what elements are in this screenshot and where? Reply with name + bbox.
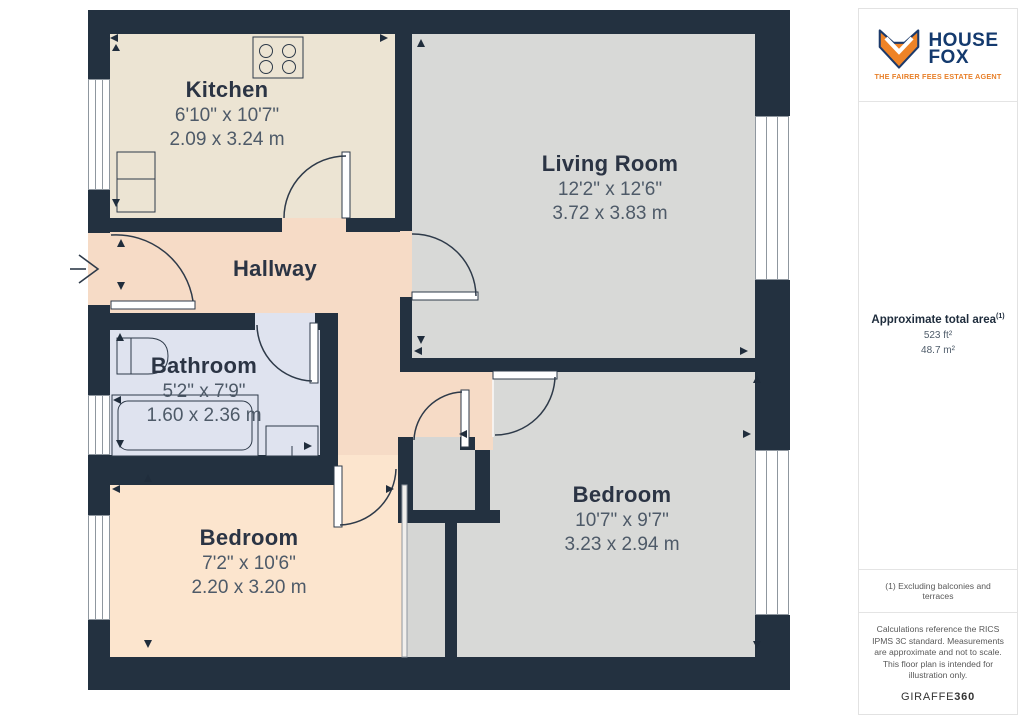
room-name: Kitchen — [169, 76, 284, 104]
room-name: Hallway — [233, 255, 317, 283]
floorplan-page: Kitchen 6'10" x 10'7" 2.09 x 3.24 m Livi… — [0, 0, 1020, 721]
wall — [88, 305, 110, 395]
disclaimer-text: Calculations reference the RICS IPMS 3C … — [871, 624, 1005, 682]
bedroom-left-door-opening — [338, 455, 398, 485]
wall — [88, 34, 110, 79]
window — [88, 395, 110, 455]
bedroom-left-label: Bedroom 7'2" x 10'6" 2.20 x 3.20 m — [191, 524, 306, 600]
window — [755, 116, 789, 280]
wall — [395, 10, 412, 232]
living-room-door-opening — [400, 231, 412, 297]
service-void-floor — [407, 523, 445, 657]
room-dims-imperial: 10'7" x 9'7" — [564, 509, 679, 533]
kitchen-door-opening — [282, 218, 346, 232]
room-dims-metric: 2.09 x 3.24 m — [169, 128, 284, 152]
bedroom-right-label: Bedroom 10'7" x 9'7" 3.23 x 2.94 m — [564, 481, 679, 557]
front-door-opening — [88, 233, 110, 305]
closet-door-opening — [413, 437, 460, 450]
footnote-marker: (1) — [996, 313, 1005, 320]
wall — [110, 218, 282, 232]
living-room-label: Living Room 12'2" x 12'6" 3.72 x 3.83 m — [542, 150, 679, 226]
bathroom-label: Bathroom 5'2" x 7'9" 1.60 x 2.36 m — [146, 352, 261, 428]
closet-floor — [413, 450, 475, 510]
room-dims-imperial: 7'2" x 10'6" — [191, 552, 306, 576]
room-dims-metric: 3.72 x 3.83 m — [542, 202, 679, 226]
bathroom-door-opening — [255, 313, 315, 330]
info-sidebar: HOUSE FOX THE FAIRER FEES ESTATE AGENT A… — [858, 8, 1018, 715]
wall — [400, 297, 412, 358]
window — [755, 450, 789, 615]
wall — [346, 218, 412, 232]
wall — [88, 190, 110, 233]
room-dims-imperial: 5'2" x 7'9" — [146, 380, 261, 404]
wall — [88, 455, 110, 515]
logo-line2: FOX — [928, 49, 998, 66]
wall — [110, 455, 338, 485]
room-name: Bathroom — [146, 352, 261, 380]
hallway-corridor-floor — [338, 313, 400, 455]
wall — [755, 34, 790, 116]
wall — [398, 510, 500, 523]
logo-tagline: THE FAIRER FEES ESTATE AGENT — [874, 72, 1001, 81]
hallway-label: Hallway — [233, 255, 317, 283]
wall — [400, 358, 790, 372]
wall — [110, 313, 255, 330]
window — [88, 79, 110, 190]
room-dims-metric: 3.23 x 2.94 m — [564, 533, 679, 557]
wall — [445, 523, 457, 657]
wall — [88, 657, 790, 690]
total-area-label: Approximate total area(1) — [871, 313, 1004, 326]
kitchen-label: Kitchen 6'10" x 10'7" 2.09 x 3.24 m — [169, 76, 284, 152]
total-area-imperial: 523 ft² — [924, 328, 952, 343]
footnote-text: (1) Excluding balconies and terraces — [859, 569, 1017, 612]
fox-icon — [877, 29, 921, 69]
total-area-metric: 48.7 m² — [921, 343, 955, 358]
logo-wordmark: HOUSE FOX — [928, 32, 998, 66]
wall — [88, 10, 790, 34]
room-dims-metric: 2.20 x 3.20 m — [191, 576, 306, 600]
room-name: Bedroom — [191, 524, 306, 552]
giraffe360-brand: GIRAFFE360 — [901, 691, 975, 703]
disclaimer-section: Calculations reference the RICS IPMS 3C … — [859, 612, 1017, 714]
room-name: Living Room — [542, 150, 679, 178]
wall — [88, 620, 110, 657]
room-dims-imperial: 6'10" x 10'7" — [169, 104, 284, 128]
total-area-section: Approximate total area(1) 523 ft² 48.7 m… — [859, 102, 1017, 569]
window — [88, 515, 110, 620]
wall — [320, 313, 338, 455]
room-dims-metric: 1.60 x 2.36 m — [146, 404, 261, 428]
room-name: Bedroom — [564, 481, 679, 509]
wall — [755, 615, 790, 657]
room-dims-imperial: 12'2" x 12'6" — [542, 178, 679, 202]
wall — [460, 437, 475, 450]
agency-logo: HOUSE FOX THE FAIRER FEES ESTATE AGENT — [859, 9, 1017, 102]
